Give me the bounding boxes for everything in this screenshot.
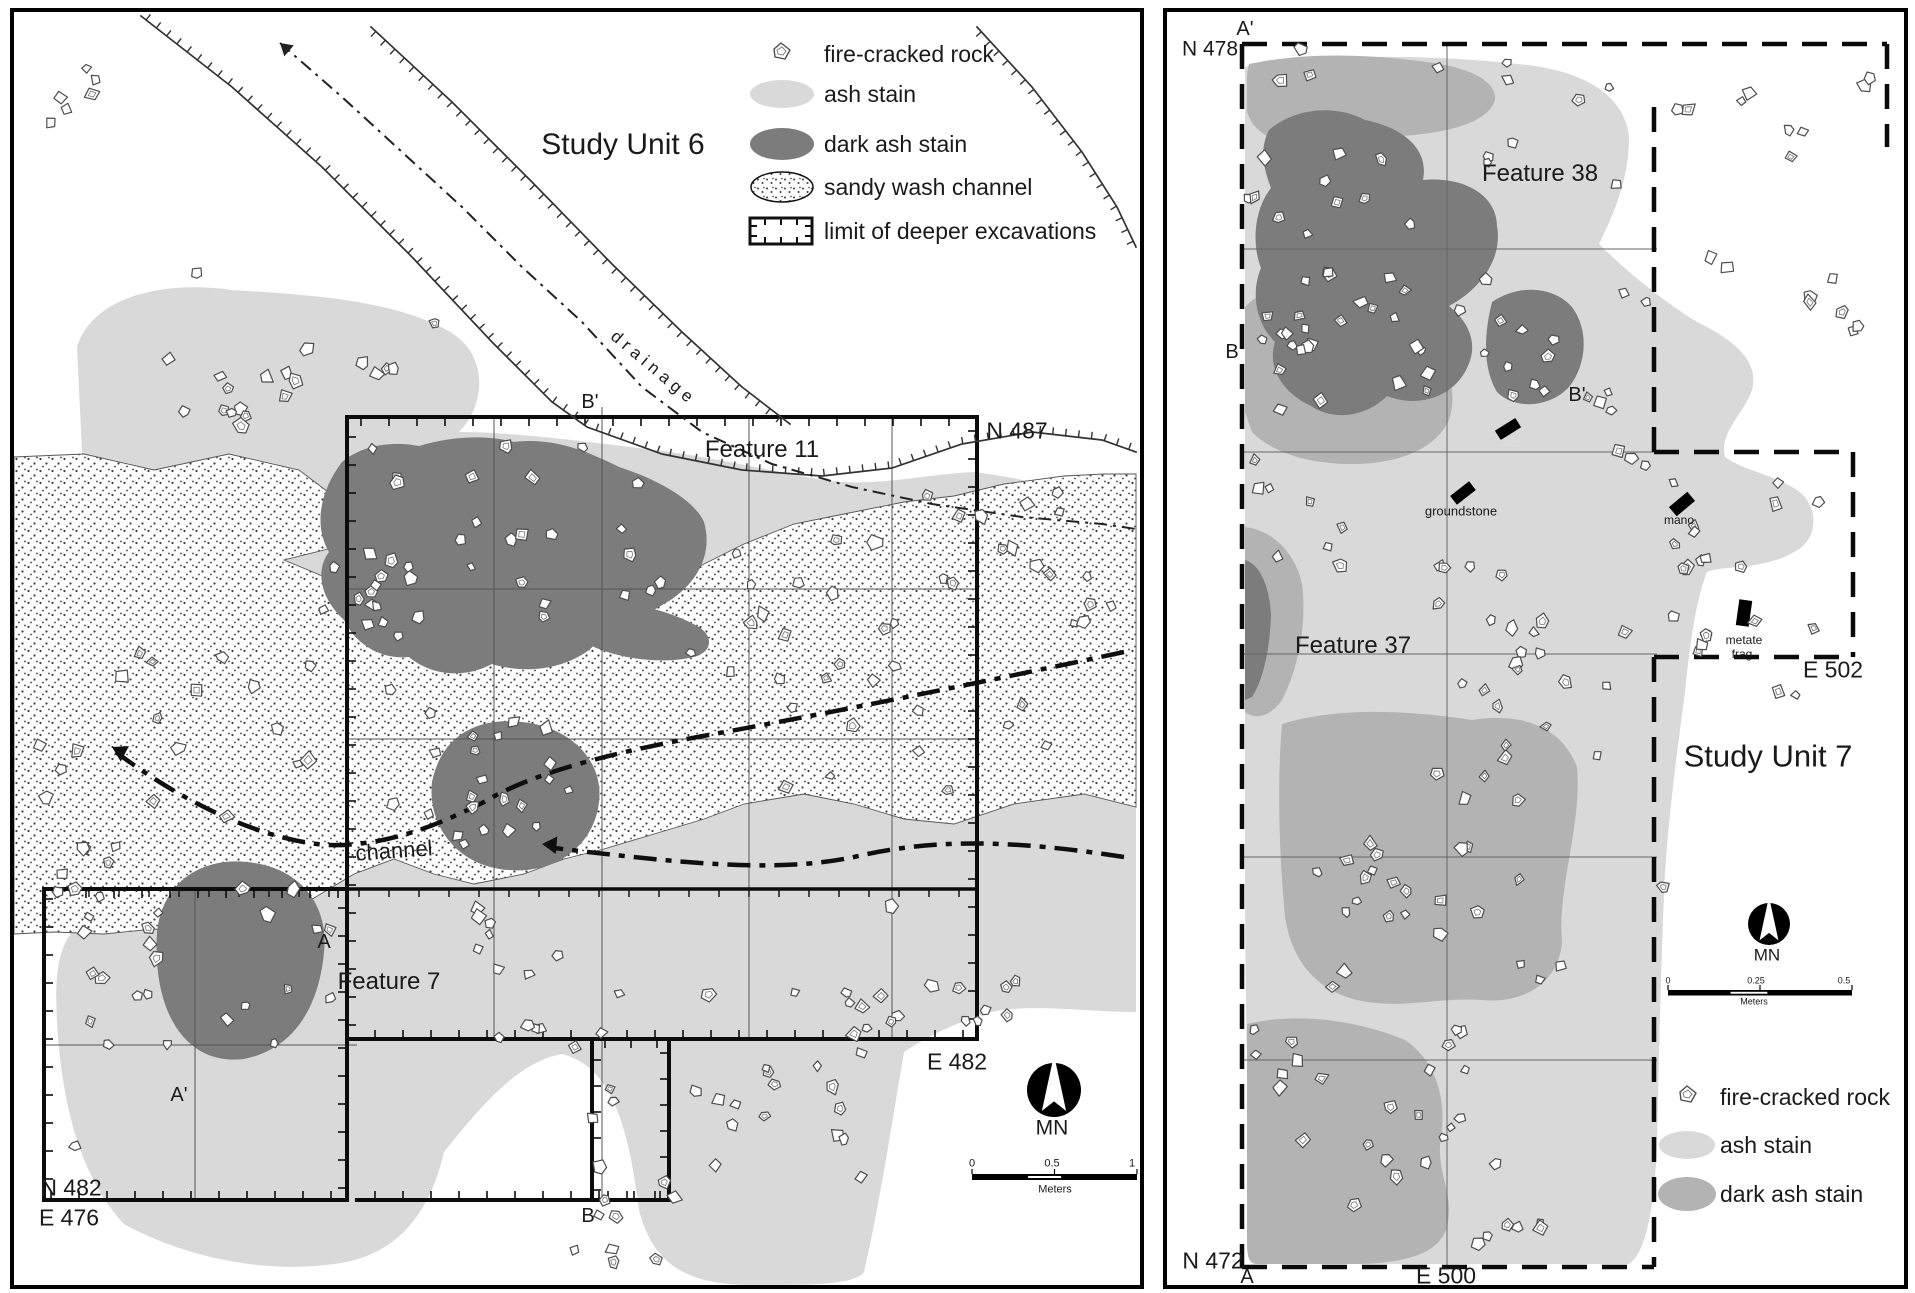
legend-label: ash stain [824, 81, 916, 108]
scale-units: Meters [1740, 998, 1768, 1007]
legend-label: dark ash stain [1720, 1181, 1863, 1208]
label-groundstone: groundstone [1425, 505, 1497, 518]
legend-item: ash stain [1654, 1126, 1812, 1164]
archaeological-site-map: Study Unit 6 fire-cracked rock ash stain… [0, 0, 1915, 1293]
label-b: B [581, 1206, 594, 1226]
label-mano: mano [1664, 514, 1694, 526]
scale-tick-025: 0.25 [1747, 977, 1765, 986]
legend-label: ash stain [1720, 1132, 1812, 1159]
legend-label: limit of deeper excavations [824, 218, 1096, 245]
legend-item: dark ash stain [1654, 1173, 1863, 1215]
label-a-prime: A' [170, 1085, 187, 1105]
legend-item: fire-cracked rock [1654, 1078, 1890, 1116]
limit-of-deeper-excavations-swatch [740, 213, 824, 249]
label-feature-11: Feature 11 [705, 438, 819, 462]
scale-tick-1: 1 [1129, 1159, 1135, 1170]
legend-label: fire-cracked rock [824, 41, 994, 68]
label-n472: N 472 [1182, 1250, 1243, 1273]
legend-label: fire-cracked rock [1720, 1084, 1890, 1111]
label-b-prime: B' [581, 392, 598, 412]
label-n487: N 487 [986, 420, 1047, 443]
dark-ash-stain-swatch [740, 125, 824, 163]
legend-item: fire-cracked rock [740, 36, 994, 72]
label-e500: E 500 [1416, 1265, 1476, 1288]
legend-item: ash stain [740, 76, 916, 112]
dark-ash-stain-swatch [1654, 1174, 1720, 1214]
sandy-wash-channel-swatch [740, 168, 824, 206]
label-n478: N 478 [1182, 39, 1238, 60]
label-a: A [317, 932, 330, 952]
scale-units: Meters [1038, 1185, 1072, 1196]
panel-title: Study Unit 7 [1684, 741, 1853, 772]
label-metate-frag-line2: frag [1732, 648, 1753, 660]
label-e502: E 502 [1803, 659, 1863, 682]
scale-tick-05: 0.5 [1838, 977, 1851, 986]
fire-cracked-rock-icon [1654, 1083, 1720, 1111]
legend-item: dark ash stain [740, 125, 967, 163]
fire-cracked-rock-icon [740, 40, 824, 68]
label-b: B [1225, 342, 1238, 362]
label-feature-37: Feature 37 [1295, 634, 1411, 658]
ash-stain-swatch [1654, 1128, 1720, 1162]
panel-title: Study Unit 6 [541, 130, 704, 160]
scale-tick-05: 0.5 [1044, 1159, 1059, 1170]
label-channel: channel [355, 837, 433, 864]
scale-tick-0: 0 [1665, 977, 1670, 986]
label-e482: E 482 [927, 1051, 987, 1074]
legend-item: sandy wash channel [740, 168, 1032, 206]
north-arrow-label: MN [1754, 947, 1780, 964]
label-metate-frag-line1: metate [1726, 634, 1763, 646]
legend-label: dark ash stain [824, 131, 967, 158]
legend-label: sandy wash channel [824, 174, 1032, 201]
label-b-prime: B' [1568, 385, 1585, 405]
label-n482: N 482 [40, 1177, 101, 1200]
label-a-prime: A' [1236, 19, 1253, 39]
label-e476: E 476 [39, 1207, 99, 1230]
legend-item: limit of deeper excavations [740, 212, 1096, 250]
ash-stain-swatch [740, 77, 824, 111]
study-unit-6-panel: Study Unit 6 fire-cracked rock ash stain… [10, 8, 1144, 1289]
study-unit-7-panel: A' N 478 Feature 38 B B' mano groundston… [1163, 8, 1908, 1289]
label-artifact-small: mano [1500, 438, 1520, 446]
label-a: A [1240, 1267, 1253, 1287]
north-arrow-label: MN [1036, 1118, 1069, 1139]
label-feature-7: Feature 7 [338, 970, 441, 994]
label-feature-38: Feature 38 [1482, 162, 1598, 186]
scale-tick-0: 0 [969, 1159, 975, 1170]
